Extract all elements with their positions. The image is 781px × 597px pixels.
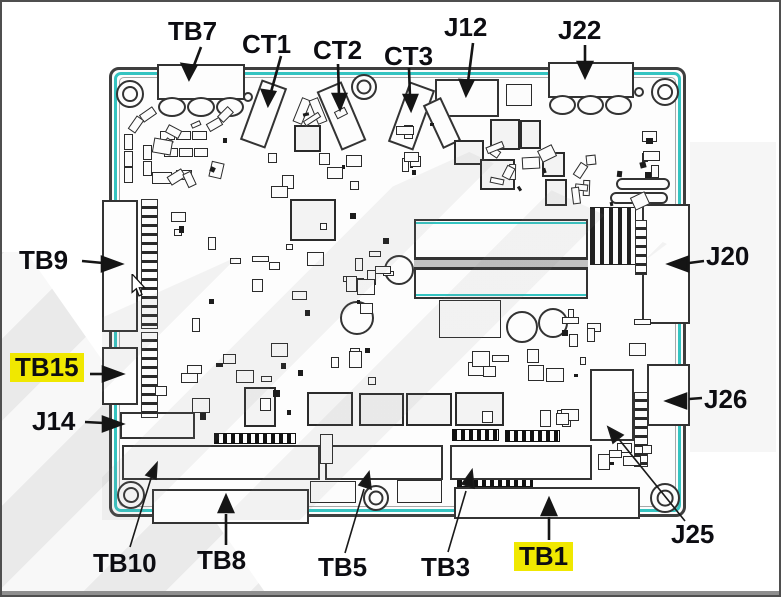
component	[271, 186, 288, 198]
component	[454, 487, 640, 519]
component	[192, 131, 207, 140]
callout-tb15: TB15	[10, 353, 84, 382]
component	[396, 126, 414, 136]
component	[325, 445, 443, 480]
component	[642, 445, 652, 455]
component	[522, 157, 541, 170]
component	[268, 153, 277, 163]
component	[605, 95, 632, 115]
component	[192, 398, 210, 412]
component	[369, 251, 381, 257]
component	[305, 310, 310, 316]
component	[643, 151, 661, 161]
component	[179, 148, 193, 157]
component	[209, 299, 213, 304]
mounting-hole	[351, 74, 377, 100]
component	[406, 393, 452, 426]
capacitor	[243, 92, 253, 102]
component	[609, 450, 621, 458]
component	[124, 151, 133, 167]
component	[157, 64, 245, 100]
callout-tb3: TB3	[421, 554, 470, 581]
component	[124, 134, 133, 150]
component	[562, 330, 569, 336]
component	[651, 165, 659, 178]
component	[455, 392, 504, 426]
component	[286, 244, 293, 250]
component	[623, 456, 641, 466]
component	[223, 138, 227, 143]
capacitor	[506, 311, 538, 343]
component	[556, 413, 569, 425]
callout-tb9: TB9	[19, 247, 68, 274]
component	[261, 376, 272, 382]
mounting-hole	[651, 78, 679, 106]
component	[271, 343, 288, 357]
component	[260, 398, 271, 411]
component	[505, 430, 560, 442]
component	[320, 434, 333, 464]
component	[357, 300, 360, 304]
component	[342, 165, 345, 169]
component	[430, 123, 434, 126]
component	[360, 303, 373, 315]
component	[292, 291, 308, 300]
component	[298, 370, 303, 376]
mounting-hole	[650, 483, 680, 513]
component	[320, 223, 327, 230]
component	[412, 170, 416, 175]
callout-ct2: CT2	[313, 37, 362, 64]
component	[506, 84, 532, 106]
component	[158, 97, 186, 117]
component	[492, 355, 509, 362]
component	[307, 252, 324, 266]
transformer-component	[414, 219, 588, 299]
component	[450, 445, 592, 480]
callout-j12: J12	[444, 14, 487, 41]
component	[143, 145, 152, 160]
component	[294, 125, 321, 152]
component	[307, 392, 353, 426]
component	[155, 386, 167, 396]
callout-j20: J20	[706, 243, 749, 270]
component	[439, 300, 501, 338]
component	[548, 62, 634, 98]
component	[143, 161, 152, 176]
component	[609, 202, 613, 207]
component	[181, 373, 198, 382]
component	[520, 120, 541, 149]
mounting-hole	[116, 80, 144, 108]
component	[171, 212, 186, 222]
component	[452, 429, 499, 441]
callout-tb10: TB10	[93, 550, 157, 577]
component	[574, 374, 578, 377]
component	[616, 178, 670, 190]
component	[404, 152, 419, 162]
component	[457, 479, 533, 487]
component	[549, 95, 576, 115]
component	[236, 370, 254, 383]
component	[102, 200, 138, 332]
component	[590, 207, 636, 265]
component	[122, 445, 320, 480]
component	[540, 410, 551, 427]
callout-tb5: TB5	[318, 554, 367, 581]
mouse-cursor-icon	[131, 274, 147, 297]
component	[216, 363, 223, 367]
component	[214, 433, 296, 444]
callout-tb1: TB1	[514, 542, 573, 571]
screenshot-frame: TB7 CT1 CT2 CT3 J12 J22 TB9 TB15 J14 TB1…	[0, 0, 781, 597]
component	[310, 481, 356, 503]
component	[350, 213, 356, 219]
component	[645, 172, 651, 178]
component	[629, 343, 646, 356]
component	[642, 204, 690, 324]
component	[562, 317, 580, 324]
component	[545, 179, 567, 206]
component	[208, 237, 217, 249]
component	[357, 279, 375, 296]
callout-j25: J25	[671, 521, 714, 548]
component	[350, 181, 359, 190]
callout-tb7: TB7	[168, 18, 217, 45]
component	[102, 347, 138, 405]
callout-j22: J22	[558, 17, 601, 44]
component	[269, 262, 281, 270]
component	[252, 279, 263, 292]
component	[472, 351, 490, 366]
capacitor	[634, 87, 644, 97]
component	[590, 369, 634, 441]
callout-ct3: CT3	[384, 43, 433, 70]
component	[598, 454, 610, 470]
component	[483, 366, 496, 377]
component	[365, 348, 370, 353]
component	[187, 97, 215, 117]
component	[580, 357, 586, 365]
component	[230, 258, 241, 264]
component	[527, 349, 539, 363]
component	[617, 171, 622, 178]
component	[327, 167, 343, 180]
callout-tb8: TB8	[197, 547, 246, 574]
component	[359, 393, 404, 426]
component	[194, 148, 208, 157]
component	[397, 480, 442, 503]
component	[124, 167, 133, 183]
component	[569, 334, 578, 347]
component	[646, 138, 652, 145]
component	[635, 220, 647, 275]
component	[200, 413, 207, 419]
component	[546, 368, 563, 382]
component	[346, 155, 362, 167]
component	[647, 364, 690, 426]
component	[252, 256, 269, 262]
component	[349, 351, 362, 368]
component	[528, 365, 544, 381]
callout-j14: J14	[32, 408, 75, 435]
component	[586, 154, 597, 165]
component	[355, 258, 363, 271]
component	[383, 238, 390, 243]
component	[152, 489, 309, 524]
component	[141, 199, 158, 329]
component	[192, 318, 200, 331]
component	[223, 354, 236, 364]
component	[587, 328, 596, 342]
component	[281, 363, 286, 368]
bottom-strip	[2, 591, 779, 595]
mounting-hole	[117, 481, 145, 509]
component	[290, 199, 336, 241]
component	[287, 410, 291, 414]
component	[577, 95, 604, 115]
component	[319, 153, 330, 166]
callout-ct1: CT1	[242, 31, 291, 58]
callout-j26: J26	[704, 386, 747, 413]
component	[571, 187, 581, 205]
component	[482, 411, 492, 424]
mounting-hole	[363, 485, 389, 511]
component	[368, 377, 376, 385]
component	[634, 319, 651, 325]
component	[375, 266, 391, 274]
component	[179, 226, 185, 233]
component	[141, 332, 158, 418]
component	[331, 357, 339, 369]
component	[273, 390, 280, 397]
